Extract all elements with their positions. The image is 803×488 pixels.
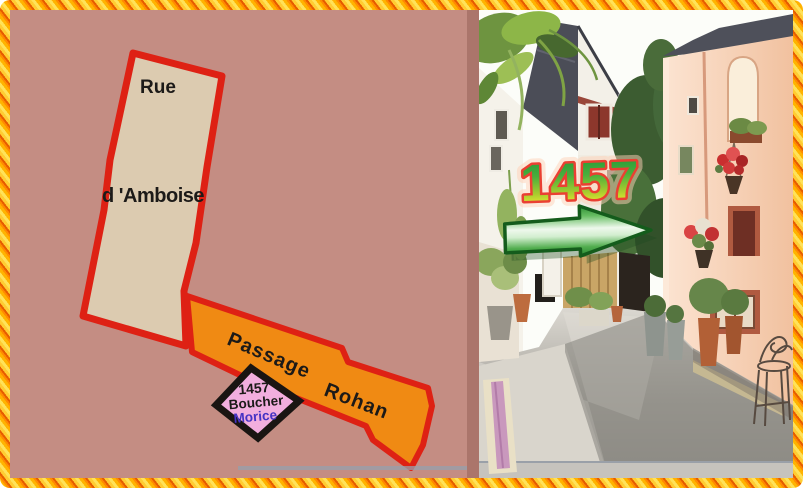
left-building-window [495,110,508,140]
topiary-ball [644,295,666,317]
street-photo-scene: 1457 1457 [479,10,793,478]
street-photo-panel: 1457 1457 [479,10,793,478]
panel-divider-strip [467,10,479,478]
collage-inner: Rue d 'Amboise Passage Rohan 1457 Bouche… [10,10,793,478]
shuttered-window [679,146,693,174]
bush [589,292,613,310]
street-name-line1: Rue [140,77,176,98]
white-planter-box [579,310,609,326]
house-number-text: 1457 [519,151,641,213]
left-building-window [490,146,502,171]
terracotta-pot [611,306,623,322]
street-map-panel: Rue d 'Amboise Passage Rohan 1457 Bouche… [10,10,467,478]
decorative-striped-frame: Rue d 'Amboise Passage Rohan 1457 Bouche… [0,0,803,488]
passage-rohan-shape [187,296,432,468]
red-door [733,211,755,256]
tiny-attic-window [688,97,698,114]
potted-plant [721,289,749,315]
street-map-drawing: Rue d 'Amboise Passage Rohan 1457 Bouche… [10,10,467,478]
shelf-plants [747,121,767,135]
map-edge-shadow [238,466,467,470]
stone-planter [644,312,666,356]
topiary-ball [666,305,684,323]
bottom-pavement-strip [479,462,793,478]
bush [565,287,593,307]
stone-planter [667,320,685,360]
stone-pot [487,306,513,340]
street-name-line2: d 'Amboise [102,185,204,207]
house-number-overlay: 1457 1457 [519,151,641,213]
terracotta-pot [725,316,743,354]
